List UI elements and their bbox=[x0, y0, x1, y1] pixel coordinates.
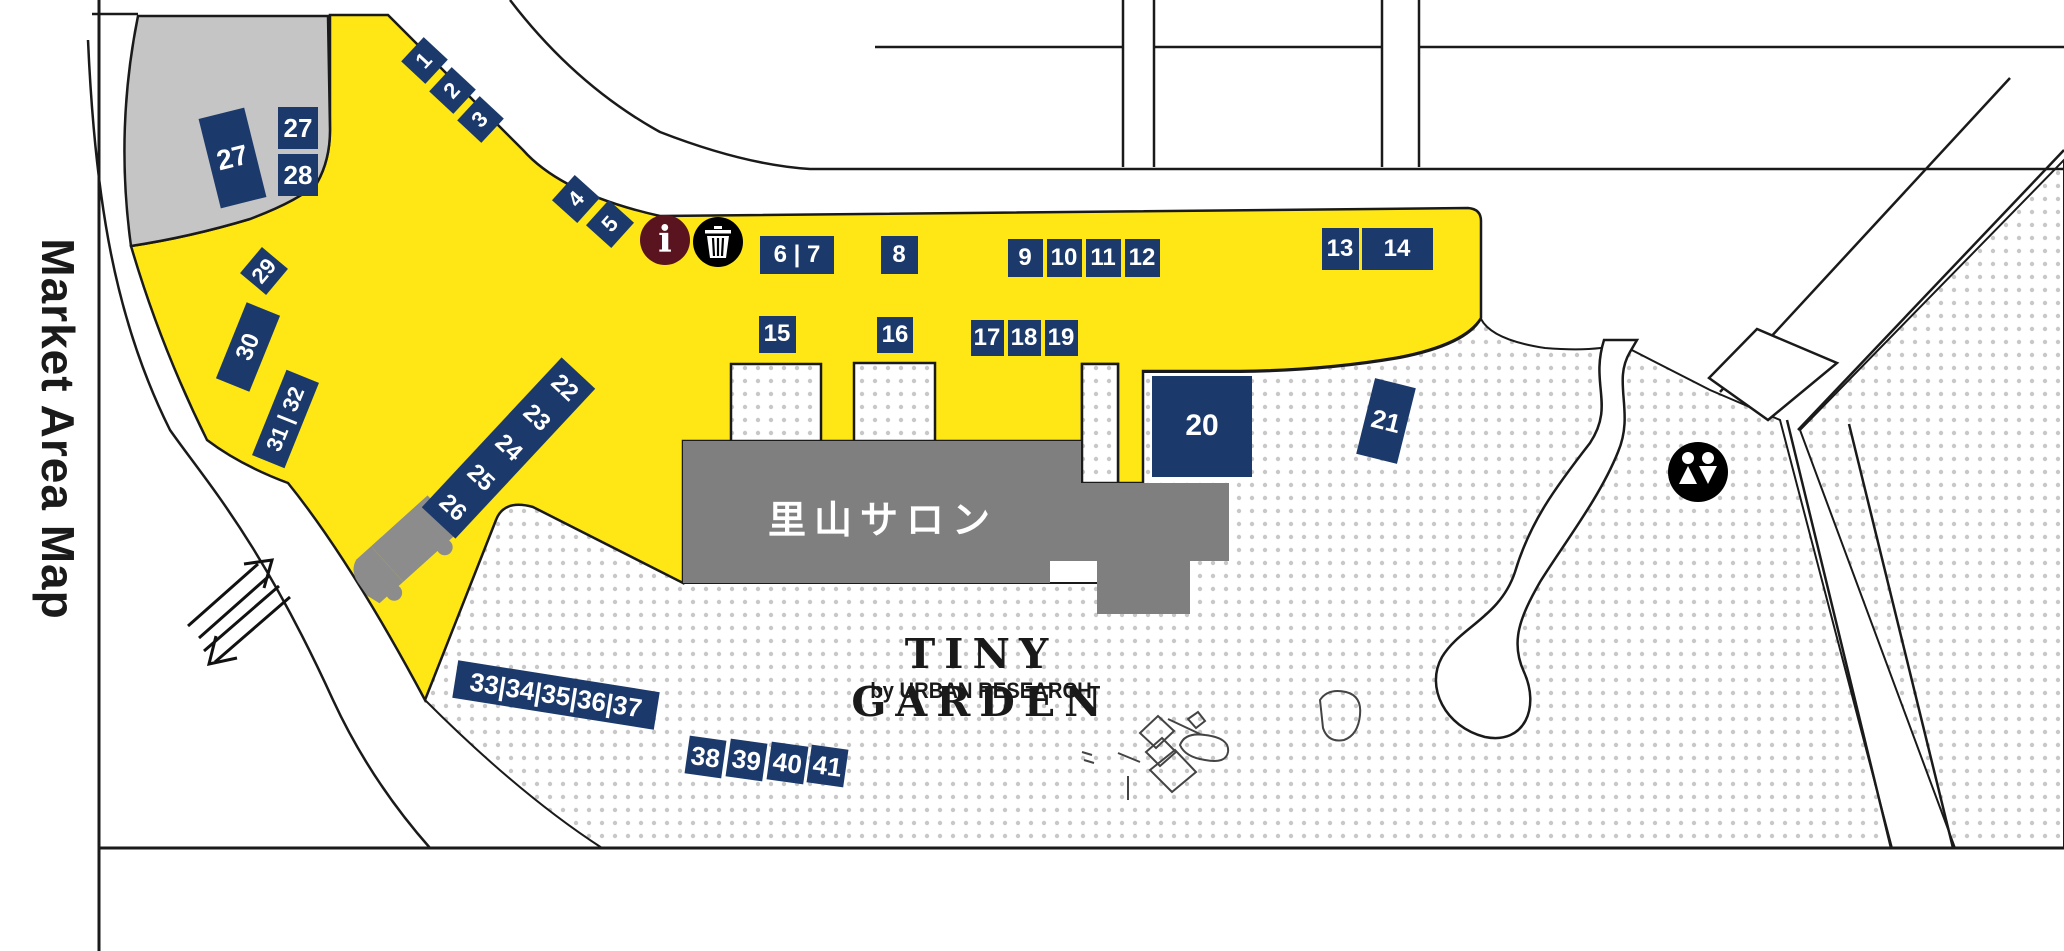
stall-number: 40 bbox=[771, 748, 803, 778]
stall-number: 24 bbox=[490, 430, 526, 466]
stall-number: 41 bbox=[811, 751, 843, 781]
stall-number: 26 bbox=[434, 490, 470, 526]
stall-number: 9 bbox=[1018, 246, 1031, 270]
stall-number: 2 bbox=[440, 78, 464, 102]
stall-number: 29 bbox=[248, 255, 281, 288]
stall-number: 27 bbox=[284, 115, 313, 141]
trash-icon bbox=[693, 217, 743, 267]
stall-number: 23 bbox=[518, 400, 554, 436]
brand-logo-by-urban-research: by URBAN RESEARCH bbox=[797, 678, 1165, 704]
stall-badge-12: 12 bbox=[1125, 239, 1160, 277]
stall-number: 1 bbox=[412, 48, 436, 72]
stall-badge-28: 28 bbox=[278, 154, 318, 196]
stall-number: 17 bbox=[974, 326, 1001, 350]
stall-badge-18: 18 bbox=[1008, 320, 1041, 356]
stall-badge-11: 11 bbox=[1086, 239, 1121, 277]
stall-number: 13 bbox=[1327, 237, 1354, 261]
stall-badge-13: 13 bbox=[1322, 228, 1359, 270]
stall-number: 20 bbox=[1185, 411, 1218, 441]
stall-badge-6-7: 6 | 7 bbox=[760, 236, 834, 274]
salon-building-label: 里山サロン bbox=[683, 489, 1083, 544]
stall-badge-41: 41 bbox=[806, 745, 848, 788]
stall-number: 22 bbox=[546, 370, 582, 406]
stall-number: 16 bbox=[882, 323, 909, 347]
stall-number: 25 bbox=[462, 460, 498, 496]
stall-number: 14 bbox=[1384, 237, 1411, 261]
stall-badge-15: 15 bbox=[759, 316, 796, 353]
stall-number: 6 | 7 bbox=[774, 243, 821, 267]
stall-badge-39: 39 bbox=[725, 739, 767, 782]
stall-badge-10: 10 bbox=[1047, 239, 1082, 277]
stall-badge-8: 8 bbox=[881, 236, 918, 274]
stippled-structure-16 bbox=[854, 363, 935, 441]
stall-number: 28 bbox=[284, 162, 313, 188]
stall-badge-14: 14 bbox=[1362, 228, 1433, 270]
stall-badge-17: 17 bbox=[971, 320, 1004, 356]
stall-number: 27 bbox=[213, 141, 250, 176]
stall-number: 4 bbox=[564, 187, 589, 211]
stall-badge-40: 40 bbox=[766, 742, 808, 785]
stippled-structure-19 bbox=[1082, 364, 1118, 483]
stall-number: 19 bbox=[1048, 326, 1075, 350]
stall-number: 18 bbox=[1011, 326, 1038, 350]
info-glyph: i bbox=[658, 219, 672, 261]
map-title: Market Area Map bbox=[33, 214, 83, 644]
stall-number: 39 bbox=[730, 745, 762, 775]
stall-badge-16: 16 bbox=[877, 317, 913, 353]
stall-badge-19: 19 bbox=[1045, 320, 1078, 356]
stall-number: 3 bbox=[468, 107, 492, 131]
stall-badge-9: 9 bbox=[1008, 239, 1043, 277]
restroom-glyph bbox=[1668, 442, 1728, 502]
stall-number: 8 bbox=[892, 243, 905, 267]
traffic-arrows bbox=[188, 560, 290, 664]
stall-number: 10 bbox=[1051, 246, 1078, 270]
stall-number: 5 bbox=[598, 212, 623, 236]
stall-number: 12 bbox=[1129, 246, 1156, 270]
market-area-map: Market Area Map 里山サロン TINY GARDEN by URB… bbox=[0, 0, 2064, 951]
information-icon: i bbox=[640, 215, 690, 265]
trash-glyph bbox=[693, 217, 743, 267]
stall-badge-38: 38 bbox=[684, 736, 726, 779]
stall-number: 11 bbox=[1090, 246, 1115, 270]
stall-badge-27: 27 bbox=[278, 107, 318, 149]
stippled-structure-15 bbox=[731, 364, 821, 441]
stall-number: 15 bbox=[764, 322, 791, 346]
stall-badge-20: 20 bbox=[1152, 376, 1252, 477]
stall-number: 38 bbox=[689, 742, 721, 772]
stall-number: 30 bbox=[232, 330, 264, 364]
stall-number: 21 bbox=[1369, 405, 1403, 437]
restroom-icon bbox=[1668, 442, 1728, 502]
